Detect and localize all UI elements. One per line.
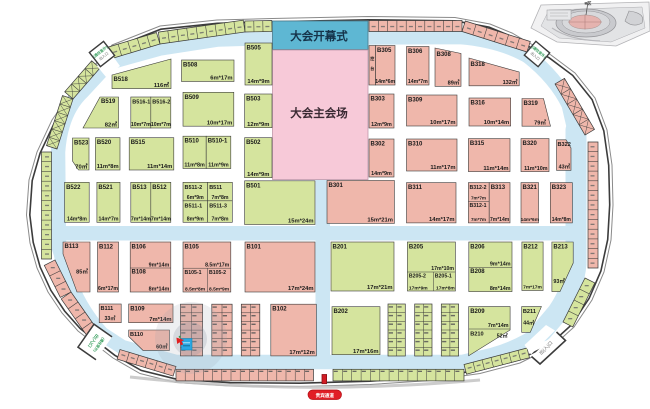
svg-text:B510: B510 [185,139,200,145]
svg-text:B212: B212 [523,245,538,251]
svg-text:8m*9m: 8m*9m [187,217,204,223]
svg-text:93㎡: 93㎡ [553,277,565,285]
svg-text:B322: B322 [558,142,571,148]
svg-text:11m*14m: 11m*14m [483,166,508,172]
svg-text:17m*24m: 17m*24m [288,286,313,292]
svg-text:B309: B309 [408,98,423,104]
svg-text:7m*14m: 7m*14m [151,217,171,223]
svg-text:89㎡: 89㎡ [448,79,460,87]
svg-text:B520: B520 [97,140,112,146]
svg-text:B205-1: B205-1 [435,274,452,280]
svg-text:B523: B523 [74,141,89,147]
svg-text:B205-2: B205-2 [409,274,426,280]
svg-text:6m*9m: 6m*9m [187,195,204,201]
svg-text:B310: B310 [408,142,423,148]
svg-text:52㎡: 52㎡ [497,332,509,340]
svg-text:B205: B205 [409,245,424,251]
svg-text:8.5m*9m: 8.5m*9m [209,286,230,292]
svg-text:17m*12m: 17m*12m [289,350,314,356]
svg-text:B509: B509 [185,95,200,101]
svg-text:台: 台 [370,65,374,71]
svg-text:B105-1: B105-1 [185,270,202,276]
svg-text:79㎡: 79㎡ [534,119,546,127]
svg-text:14m*9m: 14m*9m [247,79,269,85]
svg-text:B208: B208 [470,269,485,275]
svg-text:B323: B323 [552,185,567,191]
svg-text:11m*9m: 11m*9m [208,163,229,169]
svg-text:10m*7m: 10m*7m [151,122,171,128]
svg-text:B513: B513 [132,185,147,191]
svg-text:B502: B502 [246,140,261,146]
svg-text:7m*14m: 7m*14m [131,217,151,223]
svg-text:B303: B303 [371,97,386,103]
svg-text:B511-3: B511-3 [209,203,227,209]
svg-text:B210: B210 [470,332,483,338]
svg-text:B113: B113 [65,244,80,250]
svg-text:B105: B105 [185,245,200,251]
svg-text:B516-2: B516-2 [152,100,170,106]
svg-text:B313: B313 [491,185,506,191]
svg-text:B202: B202 [334,309,349,315]
svg-text:10m*17m: 10m*17m [207,120,232,126]
svg-text:B508: B508 [183,63,198,69]
svg-text:B518: B518 [114,77,129,83]
svg-text:B315: B315 [470,141,485,147]
svg-text:70㎡: 70㎡ [75,163,87,171]
svg-text:116㎡: 116㎡ [154,81,169,89]
svg-text:11m*14m: 11m*14m [147,164,172,170]
svg-text:B311: B311 [408,185,423,191]
svg-text:7m*7m: 7m*7m [471,196,486,201]
svg-text:控: 控 [370,55,374,61]
svg-text:14m*9m: 14m*9m [247,172,269,178]
svg-text:B505: B505 [247,46,262,52]
svg-text:B106: B106 [132,245,147,251]
svg-text:B512: B512 [152,185,167,191]
svg-text:B312-2: B312-2 [470,185,487,191]
svg-text:B105-2: B105-2 [209,270,226,276]
svg-text:9m*14m: 9m*14m [490,262,511,268]
svg-text:14m*6m: 14m*6m [375,79,395,85]
svg-text:B301: B301 [329,183,344,189]
svg-text:11m*10m: 11m*10m [524,166,548,172]
svg-text:6m*17m: 6m*17m [210,76,232,82]
svg-text:B321: B321 [523,185,538,191]
svg-text:17m*16m: 17m*16m [353,349,378,355]
svg-text:14m*6m: 14m*6m [521,217,539,223]
svg-text:B503: B503 [246,97,261,103]
svg-text:17m*10m: 17m*10m [431,266,454,272]
svg-text:B108: B108 [132,270,147,276]
svg-text:8.5m*17m: 8.5m*17m [205,262,230,268]
svg-text:14m*17m: 14m*17m [429,217,454,223]
svg-text:B521: B521 [98,185,113,191]
svg-text:B312-1: B312-1 [470,203,487,209]
svg-text:B320: B320 [523,141,538,147]
svg-text:7m*8m: 7m*8m [211,217,228,223]
svg-text:12m*9m: 12m*9m [247,122,269,128]
svg-text:8m*14m: 8m*14m [490,286,511,292]
svg-text:6m*17m: 6m*17m [98,286,118,292]
svg-text:B316: B316 [471,101,486,107]
svg-text:B511: B511 [209,185,222,191]
svg-text:14m*8m: 14m*8m [552,217,572,223]
svg-text:B319: B319 [524,101,539,107]
svg-text:15m*21m: 15m*21m [367,218,392,224]
svg-text:17m*21m: 17m*21m [367,285,392,291]
svg-text:8.5m*8m: 8.5m*8m [185,286,206,292]
svg-text:33㎡: 33㎡ [105,314,117,322]
svg-text:B519: B519 [101,99,116,105]
svg-text:B101: B101 [247,245,262,251]
svg-text:10m*14m: 10m*14m [484,120,509,126]
svg-text:B102: B102 [272,307,287,313]
svg-text:B511-2: B511-2 [185,185,203,191]
svg-text:B306: B306 [408,49,423,55]
svg-text:7m*14m: 7m*14m [490,217,510,223]
svg-text:132㎡: 132㎡ [503,78,518,86]
svg-text:贵宾通道: 贵宾通道 [316,392,335,399]
svg-text:10m*17m: 10m*17m [430,120,455,126]
svg-text:11m*17m: 11m*17m [430,165,455,171]
svg-text:11m*8m: 11m*8m [184,163,205,169]
svg-text:B213: B213 [553,245,568,251]
svg-text:14m*7m: 14m*7m [99,217,119,223]
svg-text:B201: B201 [333,245,348,251]
svg-text:14m*8m: 14m*8m [67,217,87,223]
svg-text:7m*14m: 7m*14m [488,323,509,329]
svg-text:9m*14m: 9m*14m [149,262,170,268]
svg-text:44㎡: 44㎡ [523,319,535,327]
svg-text:B515: B515 [131,140,146,146]
svg-text:B区: B区 [585,0,592,6]
svg-text:10m*7m: 10m*7m [131,122,151,128]
svg-text:15m*24m: 15m*24m [288,219,313,225]
svg-text:B510-1: B510-1 [208,139,228,145]
svg-text:B305: B305 [377,48,392,54]
svg-text:B501: B501 [246,183,261,189]
svg-text:82㎡: 82㎡ [105,121,117,129]
svg-text:B109: B109 [130,307,145,313]
svg-text:B516-1: B516-1 [132,100,150,106]
svg-text:B511-1: B511-1 [185,203,203,209]
svg-text:8m*14m: 8m*14m [149,286,170,292]
svg-text:43㎡: 43㎡ [559,163,571,171]
svg-text:B308: B308 [437,52,452,58]
svg-text:7m*7m: 7m*7m [471,217,486,222]
svg-text:大会主会场: 大会主会场 [290,106,348,120]
svg-text:B111: B111 [101,306,114,312]
svg-text:B209: B209 [470,309,485,315]
svg-text:B522: B522 [66,185,81,191]
svg-text:12m*9m: 12m*9m [371,122,392,128]
svg-text:B206: B206 [470,245,485,251]
svg-text:7m*17m: 7m*17m [523,285,542,291]
svg-text:大会开幕式: 大会开幕式 [290,29,348,43]
svg-text:17m*9m: 17m*9m [409,286,428,292]
svg-text:B302: B302 [371,142,386,148]
svg-text:B318: B318 [471,62,486,68]
svg-text:B110: B110 [130,332,143,338]
svg-text:17m*8m: 17m*8m [436,286,455,292]
svg-text:14m*7m: 14m*7m [408,79,428,85]
svg-text:B112: B112 [99,245,114,251]
svg-text:7m*8m: 7m*8m [211,195,228,201]
svg-text:85㎡: 85㎡ [76,268,88,276]
svg-text:11m*8m: 11m*8m [97,164,119,170]
svg-text:B211: B211 [523,309,536,315]
svg-text:14m*9m: 14m*9m [371,171,392,177]
